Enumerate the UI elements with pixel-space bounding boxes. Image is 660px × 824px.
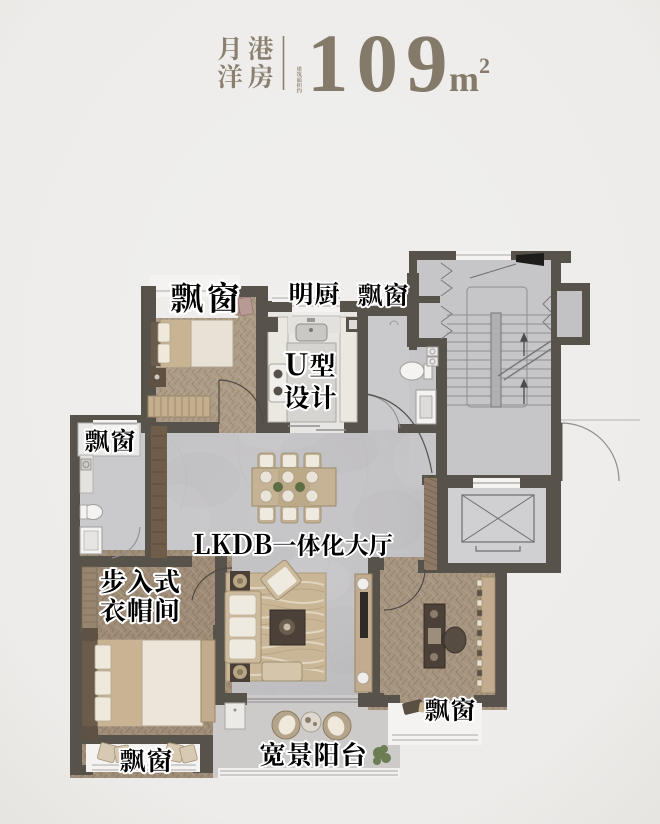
svg-text:m: m xyxy=(449,59,479,99)
svg-text:109: 109 xyxy=(307,17,456,109)
svg-text:2: 2 xyxy=(479,53,490,78)
